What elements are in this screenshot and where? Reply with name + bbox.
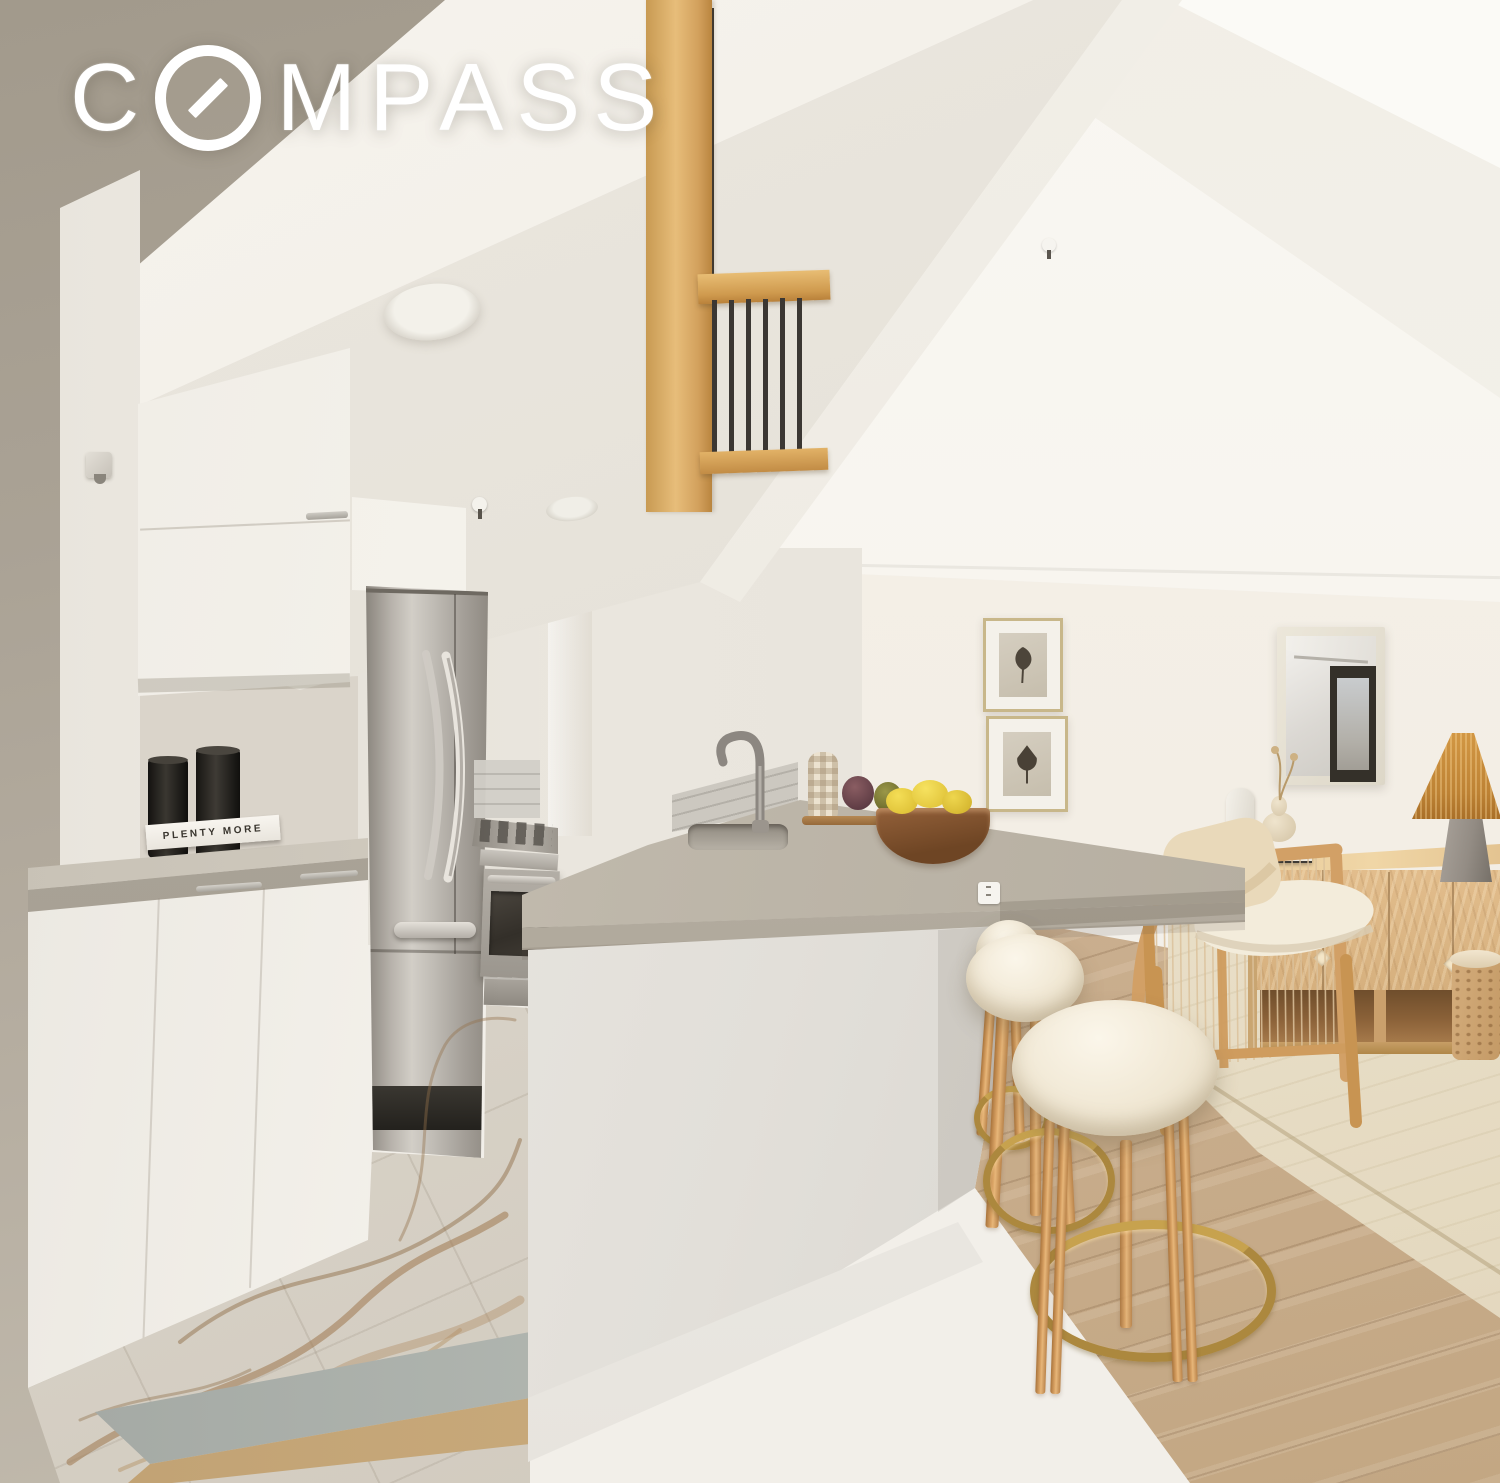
railing-baluster-5 [780,298,785,454]
leaf-print-bottom [1003,732,1052,797]
logo-letter-c: C [70,40,152,156]
logo-letters-mpass: MPASS [276,40,670,156]
leaf-icon [1012,740,1042,788]
needle-bar [188,78,228,118]
compass-needle-icon [155,45,261,151]
candleholder-left-cap [148,756,188,764]
railing-baluster-6 [797,298,802,454]
gooseneck-faucet [700,716,800,836]
burl-side-table [1452,958,1500,1060]
railing-baluster-1 [712,300,717,454]
burl-table-top [1450,950,1500,968]
leaf-icon [1008,642,1038,688]
listing-photo: PLENTY MORE [0,0,1500,1483]
railing-baluster-4 [763,299,768,454]
stove-backsplash-tile [474,760,540,818]
mirror-window-view [1337,678,1369,770]
cookbook-title: PLENTY MORE [162,823,263,842]
compass-watermark-logo: C MPASS [70,40,670,156]
mirror-window-reflection [1330,666,1376,782]
framed-leaf-print-top [983,618,1063,712]
sprinkler-pin-kitchen [478,509,482,519]
mirror-ceiling-reflection [1286,636,1376,670]
framed-leaf-print-bottom [986,716,1068,812]
railing-bottom-rail [700,448,829,474]
stool-near-footrest [1030,1220,1276,1362]
lemon-3 [942,790,972,814]
leaf-print-top [999,633,1046,696]
dried-stem [1258,742,1304,802]
chair-front-right-leg [1346,960,1356,1122]
oven-handle [487,875,555,885]
sprinkler-pin-living [1047,250,1051,259]
railing-baluster-3 [746,299,751,454]
outlet-slots [986,886,991,900]
candleholder-right-cap [196,746,240,755]
stool-near-seat [1012,1000,1218,1136]
checkered-vase [808,752,838,822]
railing-baluster-2 [729,300,734,454]
decorative-artichoke-red [842,776,874,810]
